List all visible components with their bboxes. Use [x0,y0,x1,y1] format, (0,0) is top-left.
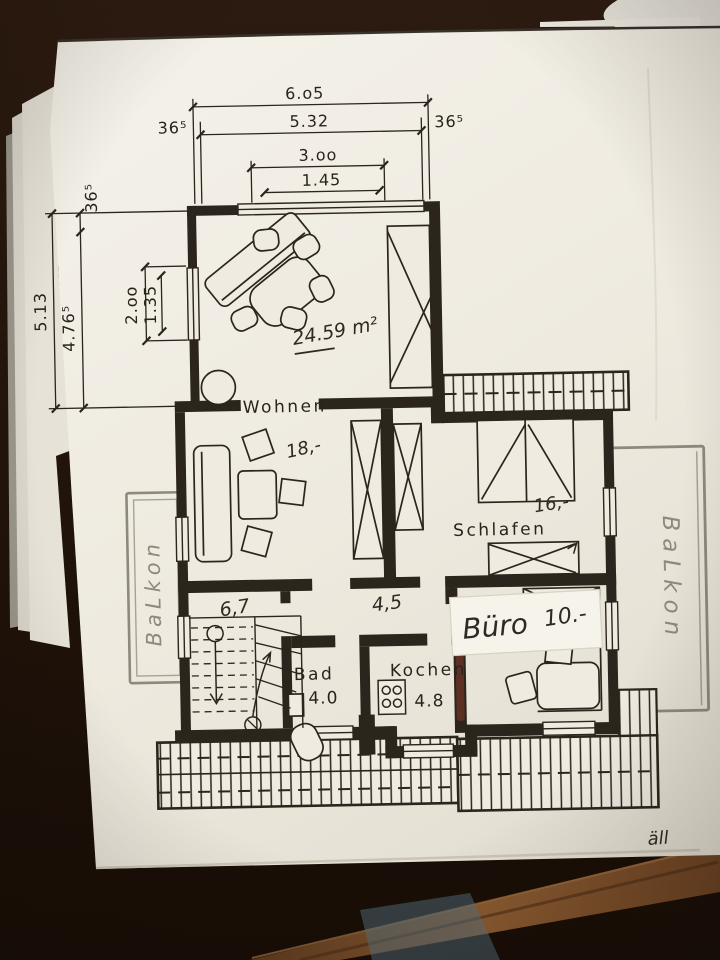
photo-vignette [0,0,720,960]
photo-of-floor-plan: BaLkon BaLkon [0,0,720,960]
floor-plan-photo: BaLkon BaLkon [0,0,720,960]
